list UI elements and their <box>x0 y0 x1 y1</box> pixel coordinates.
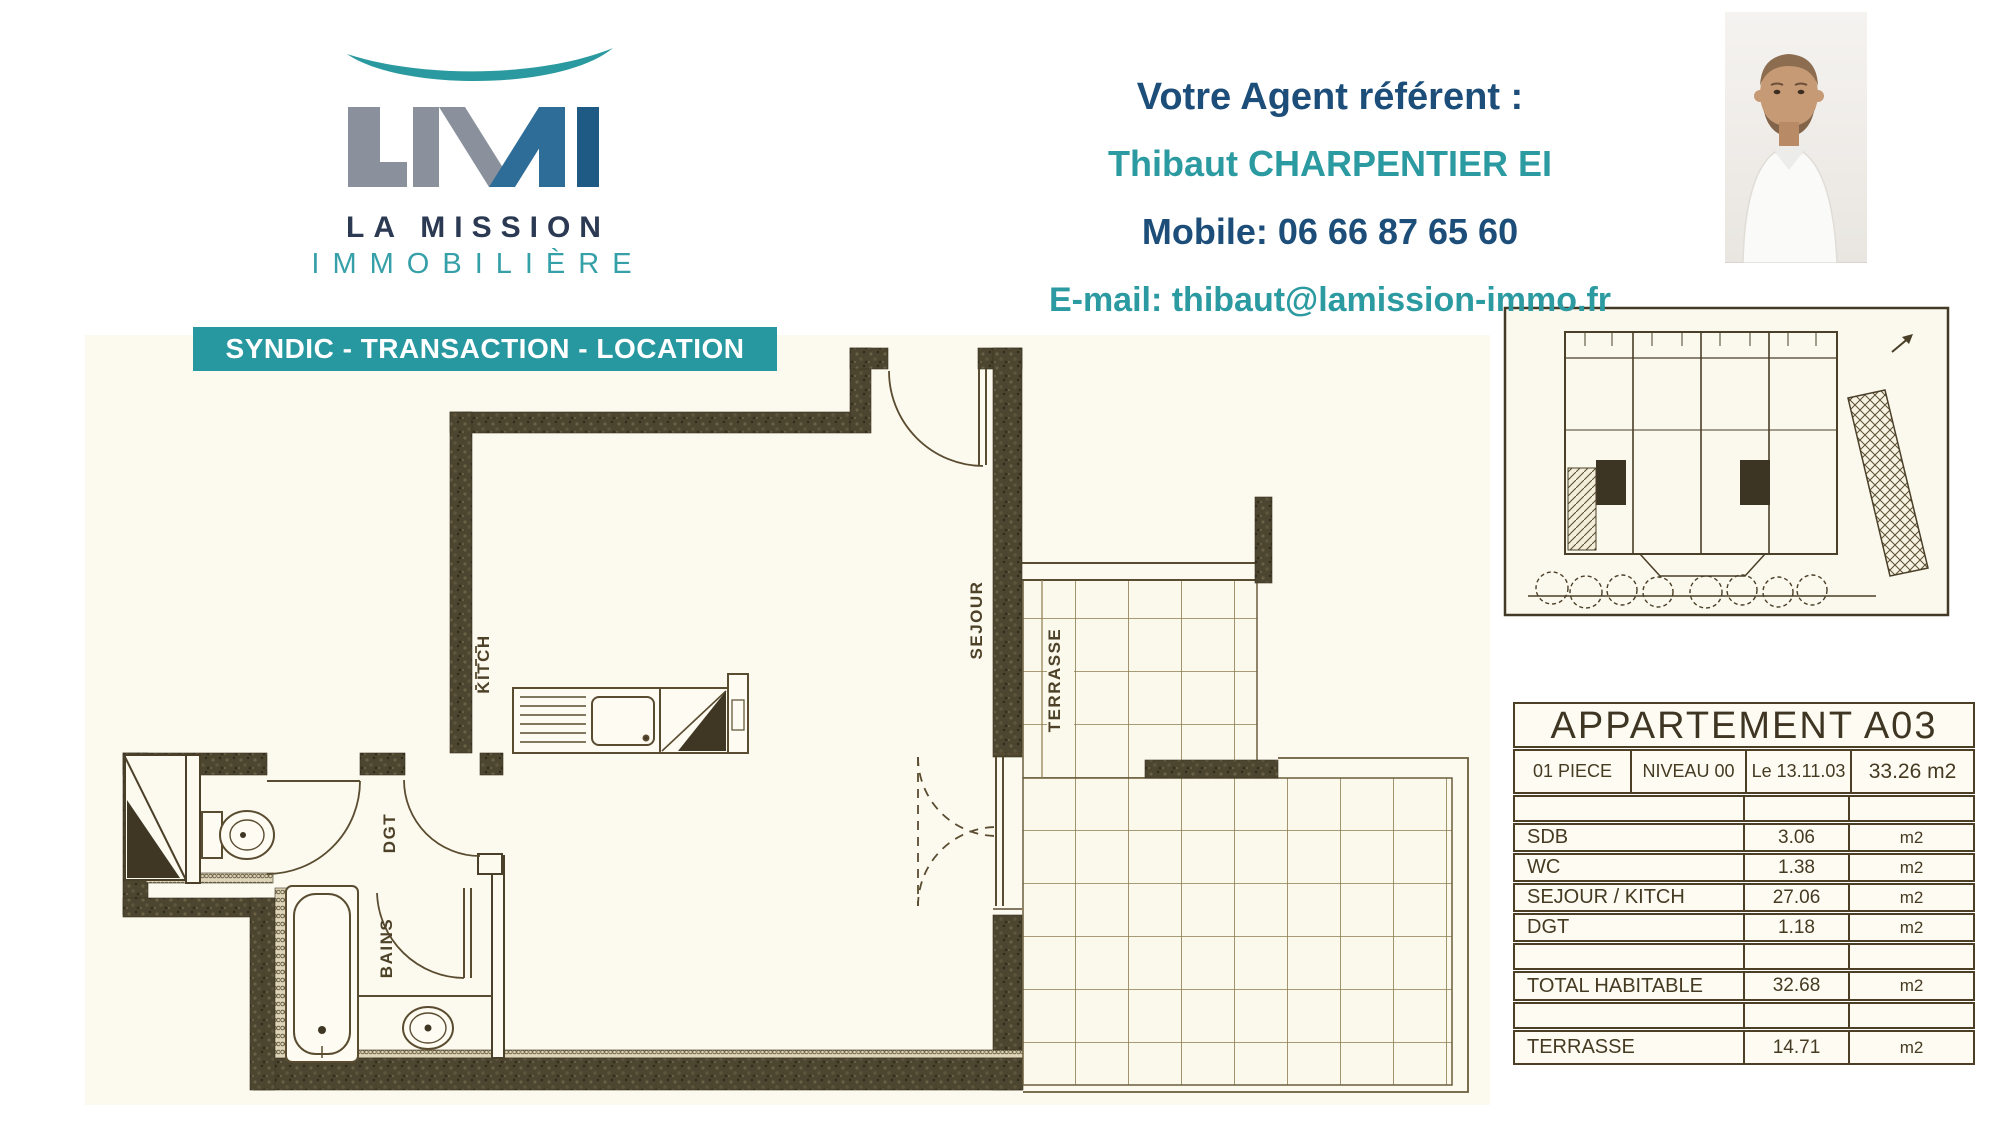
table-row: SDB 3.06 m2 <box>1513 823 1975 852</box>
site-plan-thumbnail <box>1505 308 1948 615</box>
brand-name-secondary: IMMOBILIÈRE <box>258 248 698 281</box>
brand-logo <box>347 48 613 187</box>
room-label-living: SEJOUR <box>967 581 986 660</box>
header-pieces: 01 PIECE <box>1515 751 1630 792</box>
toilet <box>202 811 274 859</box>
summary-table-title: APPARTEMENT A03 <box>1513 702 1975 748</box>
room-label-bath: BAINS <box>377 918 396 978</box>
agent-name: Thibaut CHARPENTIER EI <box>1020 143 1640 185</box>
header-level: NIVEAU 00 <box>1630 751 1745 792</box>
table-row: DGT 1.18 m2 <box>1513 913 1975 942</box>
table-total-row: TOTAL HABITABLE 32.68 m2 <box>1513 971 1975 1001</box>
agent-contact-card: Votre Agent référent : Thibaut CHARPENTI… <box>1020 76 1640 320</box>
agent-avatar-graphic <box>1725 12 1867 263</box>
summary-table-header-row: 01 PIECE NIVEAU 00 Le 13.11.03 33.26 m2 <box>1513 749 1975 794</box>
services-banner: SYNDIC - TRANSACTION - LOCATION <box>193 327 777 371</box>
bathtub <box>286 886 358 1062</box>
table-row: WC 1.38 m2 <box>1513 853 1975 882</box>
swoosh-icon <box>347 48 613 81</box>
lmi-monogram <box>348 107 599 187</box>
table-row: SEJOUR / KITCH 27.06 m2 <box>1513 883 1975 912</box>
table-spacer-row <box>1513 795 1975 822</box>
table-spacer-row <box>1513 943 1975 970</box>
agent-intro: Votre Agent référent : <box>1020 76 1640 119</box>
room-label-terrace: TERRASSE <box>1045 628 1064 733</box>
table-terrace-row: TERRASSE 14.71 m2 <box>1513 1030 1975 1065</box>
header-total-area: 33.26 m2 <box>1850 751 1973 792</box>
header-date: Le 13.11.03 <box>1745 751 1850 792</box>
room-label-hallway: DGT <box>380 813 399 853</box>
agent-email: E-mail: thibaut@lamission-immo.fr <box>1020 281 1640 320</box>
agent-mobile: Mobile: 06 66 87 65 60 <box>1020 211 1640 253</box>
agent-photo <box>1725 12 1867 263</box>
flyer-page: KITCH SEJOUR TERRASSE DGT BAINS <box>0 0 2000 1130</box>
table-spacer-row <box>1513 1002 1975 1029</box>
summary-table: APPARTEMENT A03 01 PIECE NIVEAU 00 Le 13… <box>1513 702 1975 1065</box>
room-label-kitchen: KITCH <box>474 634 493 693</box>
brand-name-primary: LA MISSION <box>258 211 698 245</box>
utility-shaft <box>125 755 186 880</box>
